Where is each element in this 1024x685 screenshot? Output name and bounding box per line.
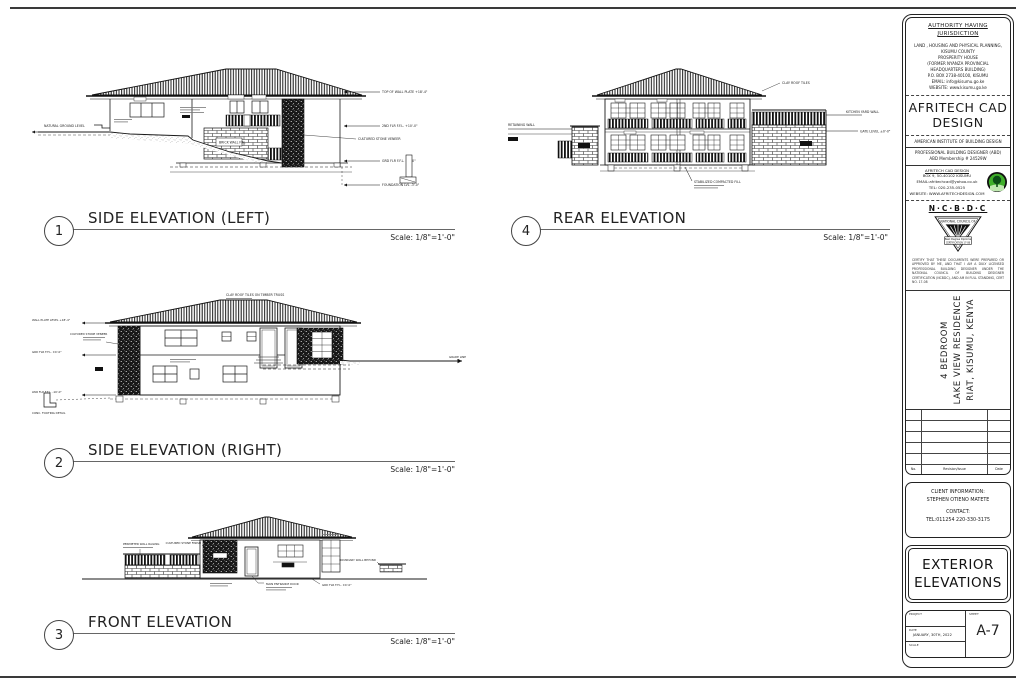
svg-text:CLAY ROOF TILES: CLAY ROOF TILES (782, 81, 810, 85)
sheet-meta-right: SHEET A-7 (966, 611, 1010, 657)
fence-note: PERIMETER WALL RAILING (123, 542, 159, 555)
caption-line-4 (539, 229, 890, 230)
title-block-main: AUTHORITY HAVING JURISDICTION LAND , HOU… (905, 17, 1011, 475)
stone-leader: CULTURED STONE VENEER (304, 135, 401, 141)
railing-band (226, 115, 280, 126)
client-phone: TEL:011254 220-330-3175 (906, 517, 1010, 525)
scale-label: SCALE (909, 643, 919, 647)
upper-windows (130, 95, 268, 117)
ncbdc-triangle-logo-icon: NATIONAL COUNCIL OF Best Degree Diploma … (932, 213, 984, 253)
svg-text:KITCHEN YARD WALL: KITCHEN YARD WALL (846, 110, 879, 114)
svg-text:PERIMETER WALL RAILING: PERIMETER WALL RAILING (123, 542, 159, 546)
project-title: 4 BEDROOM LAKE VIEW RESIDENCE RIAT, KISU… (906, 290, 1010, 409)
caption-line-2 (72, 461, 455, 462)
drawing-number-bubble-3: 3 (44, 620, 74, 650)
drawing-number-bubble-2: 2 (44, 448, 74, 478)
authority-address: LAND , HOUSING AND PHYSICAL PLANNING, KI… (906, 41, 1010, 95)
date-value: JANUARY, 30TH, 2022 (913, 633, 952, 637)
revision-table: No. Revision/Issue Date (906, 409, 1010, 474)
drawing-front-elevation: PERIMETER WALL RAILING CULTURED STONE FI… (80, 505, 435, 617)
svg-text:BOUNDARY WALL BEYOND: BOUNDARY WALL BEYOND (339, 558, 376, 562)
drawing-side-elevation-right: CLAY ROOF TILES ON TIMBER TRUSS (30, 290, 470, 435)
revision-row (906, 432, 1010, 443)
client-heading: CLIENT INFORMATION: (906, 489, 1010, 497)
project-line-3: RIAT, KISUMU, KENYA (966, 299, 976, 401)
svg-text:CULTURED STONE VENEER: CULTURED STONE VENEER (358, 137, 401, 141)
drawing-scale-3: Scale: 1/8"=1'-0" (340, 637, 455, 646)
drawing-title-3: FRONT ELEVATION (88, 613, 232, 631)
designer-line: ABD Membership # 24529W (907, 156, 1009, 162)
project-line-1: 4 BEDROOM (940, 321, 950, 379)
left-note (210, 583, 232, 586)
sheet-title: EXTERIOR ELEVATIONS (908, 548, 1008, 600)
sheet-number: A-7 (966, 623, 1010, 639)
base (110, 395, 340, 404)
svg-text:GATE LEVEL ±0'-0": GATE LEVEL ±0'-0" (860, 130, 891, 134)
sheet-label: SHEET (969, 612, 979, 616)
revision-table-header: No. Revision/Issue Date (906, 465, 1010, 474)
sheet-meta-left: PROJECT DATE JANUARY, 30TH, 2022 SCALE (906, 611, 966, 657)
svg-text:CONC. FOOTING DETAIL: CONC. FOOTING DETAIL (32, 411, 66, 415)
svg-text:GRD FLR F.F.L. ±0'-0": GRD FLR F.F.L. ±0'-0" (322, 583, 352, 587)
drawing-number: 2 (55, 456, 63, 471)
boundary-wall: BOUNDARY WALL BEYOND (339, 558, 406, 572)
contact-line: WEBSITE: WWW.AFRITECHDESIGN.COM (908, 191, 986, 197)
svg-text:CERTIFICATION 17-08: CERTIFICATION 17-08 (946, 241, 971, 244)
sheet-title-box: EXTERIOR ELEVATIONS (905, 545, 1011, 603)
svg-text:MAIN ENTRANCE DOOR: MAIN ENTRANCE DOOR (266, 582, 299, 586)
firm-designer: PROFESSIONAL BUILDING DESIGNER (ABD) ABD… (906, 147, 1010, 165)
firm-name: AFRITECH CAD DESIGN (906, 95, 1010, 135)
drawing-number-bubble-1: 1 (44, 216, 74, 246)
base (600, 165, 755, 171)
drawing-title-2: SIDE ELEVATION (RIGHT) (88, 441, 282, 459)
svg-text:CLAY ROOF TILES ON TIMBER TRUS: CLAY ROOF TILES ON TIMBER TRUSS (226, 293, 284, 297)
grade-right: GRADE LINE (340, 355, 466, 365)
client-contact-heading: CONTACT: (906, 509, 1010, 517)
revision-col-no: No. (906, 465, 922, 474)
meta-row-project: PROJECT (906, 611, 965, 627)
roof (86, 69, 366, 99)
drawing-number: 3 (55, 628, 63, 643)
drawing-side-elevation-left: BRICK WALL FIN. NATURAL GROUND LEVEL TOP… (30, 55, 465, 205)
stone-entry (203, 540, 237, 573)
date-label: DATE (909, 628, 917, 632)
svg-text:BRICK WALL FIN.: BRICK WALL FIN. (219, 141, 246, 145)
svg-text:CULTURED STONE FINISH: CULTURED STONE FINISH (166, 541, 201, 545)
drawing-number: 4 (522, 224, 530, 239)
roof (592, 69, 780, 99)
revision-col-revision: Revision/Issue (922, 465, 988, 474)
svg-text:NATIONAL COUNCIL OF: NATIONAL COUNCIL OF (940, 219, 975, 223)
firm-contact: AFRITECH CAD DESIGN BOX 9, 50-40102 KISU… (906, 165, 1010, 200)
roof (105, 300, 361, 326)
doors (254, 328, 302, 368)
drawing-number-bubble-4: 4 (511, 216, 541, 246)
title-block: AUTHORITY HAVING JURISDICTION LAND , HOU… (902, 14, 1014, 668)
left-wing (508, 126, 600, 165)
svg-text:NATURAL GROUND LEVEL: NATURAL GROUND LEVEL (44, 124, 85, 128)
svg-text:2ND FLR F.F.L. +10'-0": 2ND FLR F.F.L. +10'-0" (382, 124, 418, 128)
drawing-scale-1: Scale: 1/8"=1'-0" (340, 233, 455, 242)
right-wing (752, 110, 862, 165)
client-name: STEPHEN OTIENO MATETE (906, 497, 1010, 505)
revision-row (906, 443, 1010, 454)
entry-door (245, 547, 258, 576)
stone-column (268, 99, 304, 167)
stone-right (297, 328, 343, 364)
revision-row (906, 410, 1010, 421)
footing-detail: CONC. FOOTING DETAIL (32, 393, 110, 415)
client-info-box: CLIENT INFORMATION: STEPHEN OTIENO MATET… (905, 482, 1011, 538)
stone-pillar (322, 534, 340, 572)
svg-text:GRADE LINE: GRADE LINE (449, 355, 466, 359)
project-line-2: LAKE VIEW RESIDENCE (953, 295, 963, 404)
svg-text:CULTURED STONE VENEER: CULTURED STONE VENEER (70, 332, 107, 336)
foundation (170, 163, 352, 172)
svg-text:GRD FLR F.F.L. ±0'-0": GRD FLR F.F.L. ±0'-0" (32, 350, 62, 354)
stone-pier (118, 326, 140, 395)
roof (188, 517, 356, 541)
drawing-title-4: REAR ELEVATION (553, 209, 686, 227)
sheet-border-bottom (0, 676, 1016, 678)
drawing-rear-elevation: CLAY ROOF TILES (500, 55, 895, 205)
ncbdc-disclaimer: CERTIFY THAT THESE DOCUMENTS WERE PREPAR… (908, 257, 1008, 288)
meta-row-scale: SCALE (906, 642, 965, 657)
upper-windows (165, 330, 256, 346)
svg-text:WALL PLATE LEVEL +18'-4": WALL PLATE LEVEL +18'-4" (32, 318, 71, 322)
svg-text:TOP OF WALL PLATE +18'-4": TOP OF WALL PLATE +18'-4" (381, 90, 428, 94)
meta-row-date: DATE JANUARY, 30TH, 2022 (906, 627, 965, 643)
revision-row (906, 421, 1010, 432)
lower-windows (153, 366, 247, 382)
drawing-scale-4: Scale: 1/8"=1'-0" (775, 233, 888, 242)
firm-contact-lines: AFRITECH CAD DESIGN BOX 9, 50-40102 KISU… (908, 168, 986, 197)
caption-line-3 (72, 633, 455, 634)
perimeter-fence (123, 554, 200, 578)
ncbdc-section: N·C·B·D·C NATIONAL COUNCIL OF Best Degre… (906, 200, 1010, 290)
svg-text:FOUNDATION LVL -3'-0": FOUNDATION LVL -3'-0" (382, 183, 420, 187)
sheet-meta-box: PROJECT DATE JANUARY, 30TH, 2022 SCALE S… (905, 610, 1011, 658)
level-note: GRD FLR F.F.L. ±0'-0" (312, 579, 352, 587)
authority-heading: AUTHORITY HAVING JURISDICTION (906, 18, 1010, 41)
drawing-number: 1 (55, 224, 63, 239)
svg-text:STABILIZED COMPACTED FILL: STABILIZED COMPACTED FILL (694, 180, 741, 184)
sheet-border-top (10, 7, 1016, 9)
ground-leader: NATURAL GROUND LEVEL (32, 124, 85, 132)
illegible-note-lines (95, 359, 196, 371)
authority-line: WEBSITE: www.kisumu.go.ke (907, 85, 1009, 91)
firm-logo-tree-icon (986, 171, 1008, 193)
bottom-note: STABILIZED COMPACTED FILL (685, 167, 741, 188)
authority-line: LAND , HOUSING AND PHYSICAL PLANNING, (907, 43, 1009, 49)
project-label: PROJECT (909, 612, 922, 616)
drawing-title-1: SIDE ELEVATION (LEFT) (88, 209, 270, 227)
revision-row (906, 454, 1010, 465)
ncbdc-name: N·C·B·D·C (908, 204, 1008, 213)
firm-institute: AMERICAN INSTITUTE OF BUILDING DESIGN (906, 135, 1010, 147)
svg-text:RETAINING WALL: RETAINING WALL (508, 123, 535, 127)
caption-line-1 (72, 229, 455, 230)
revision-col-date: Date (988, 465, 1010, 474)
drawing-scale-2: Scale: 1/8"=1'-0" (340, 465, 455, 474)
stone-note: CULTURED STONE VENEER (70, 332, 118, 344)
